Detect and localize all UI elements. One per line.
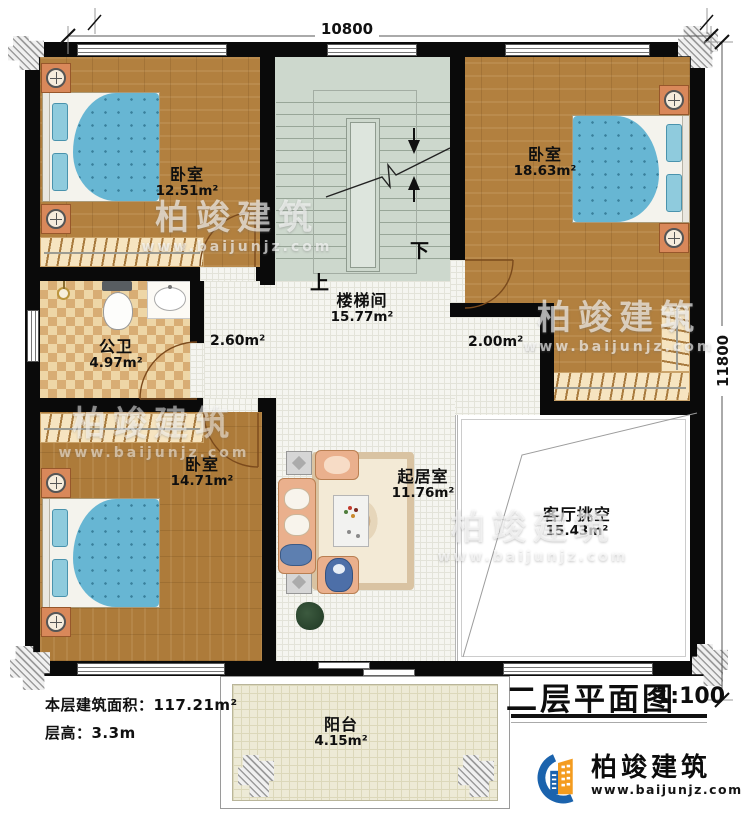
door-threshold (190, 343, 204, 398)
wall-interior (262, 398, 276, 676)
plan-title: 二层平面图 (506, 674, 676, 719)
plan-scale: 1:100 (655, 684, 725, 709)
bed-bedroom-tl (42, 92, 160, 202)
sofa-cushion (284, 514, 310, 536)
wall-interior (450, 42, 465, 260)
dimension-width: 10800 (315, 20, 379, 38)
title-underline-thin (511, 722, 707, 723)
nightstand (41, 607, 71, 637)
window (27, 310, 39, 362)
pillow (52, 103, 68, 141)
column-hatch (692, 644, 728, 686)
sliding-door-leaf (318, 662, 370, 669)
door-threshold (203, 398, 258, 412)
bed-bedroom-bl (42, 498, 160, 608)
pillow (666, 124, 682, 162)
title-underline (511, 714, 707, 718)
hall-area-left: 2.60m² (210, 333, 265, 349)
pillow (52, 153, 68, 191)
toilet (100, 281, 134, 331)
nightstand (41, 468, 71, 498)
window (77, 44, 227, 56)
stair-railing (346, 118, 380, 272)
pillow (52, 509, 68, 547)
bed-quilt (73, 499, 159, 607)
coffee-table (333, 495, 369, 547)
floor-height-note: 层高：3.3m (45, 722, 136, 743)
floorplan-canvas: 卧室 12.51m² 卧室 18.63m² 楼梯间 15.77m² 公卫 4.9… (0, 0, 750, 823)
living-void-railing (461, 419, 686, 657)
wardrobe (661, 305, 690, 372)
nightstand (41, 63, 71, 93)
stair-down-label: 下 (410, 236, 429, 263)
window (505, 44, 650, 56)
wardrobe (40, 237, 204, 267)
column-hatch (8, 36, 44, 70)
pillow (666, 174, 682, 212)
bed-headboard (682, 116, 689, 222)
bed-headboard (43, 93, 50, 201)
wall-interior (260, 42, 275, 285)
logo-website: www.baijunjz.com (591, 782, 743, 797)
hall-area-right: 2.00m² (468, 334, 523, 350)
floor-area-note: 本层建筑面积：117.21m² (45, 694, 238, 715)
wall-interior (450, 303, 554, 317)
nightstand (659, 223, 689, 253)
person-figure (325, 558, 353, 592)
side-table (286, 451, 312, 475)
wall-interior (540, 303, 554, 415)
bed-headboard (43, 499, 50, 607)
stair-up-label: 上 (310, 268, 329, 295)
sink (147, 281, 193, 319)
armchair (315, 450, 359, 480)
logo-text: 柏竣建筑 www.baijunjz.com (591, 755, 743, 797)
window (327, 44, 417, 56)
bed-quilt (573, 116, 659, 222)
wardrobe (40, 413, 204, 443)
bed-quilt (73, 93, 159, 201)
window (77, 663, 225, 675)
bed-bedroom-tr (572, 115, 690, 223)
company-logo: 柏竣建筑 www.baijunjz.com (532, 747, 743, 805)
wall-interior (540, 401, 705, 415)
potted-plant (296, 602, 324, 630)
wall-interior (25, 267, 200, 281)
logo-building-icon (532, 747, 584, 805)
wall-interior (256, 267, 275, 281)
sofa-pillow (280, 544, 312, 566)
door-threshold (200, 267, 256, 281)
wardrobe (548, 372, 690, 401)
dimension-height: 11800 (714, 326, 732, 396)
wall-exterior-right (690, 42, 705, 676)
sliding-door-leaf (363, 669, 415, 676)
logo-company-name: 柏竣建筑 (591, 755, 743, 782)
pillow (52, 559, 68, 597)
column-hatch (10, 646, 50, 690)
bath-light-fixture (57, 287, 70, 300)
wall-interior (190, 281, 204, 343)
hall-nook-floor (450, 317, 540, 415)
nightstand (659, 85, 689, 115)
table-flowers (348, 506, 352, 510)
sofa-cushion (284, 488, 310, 510)
nightstand (41, 204, 71, 234)
wall-interior (25, 398, 203, 412)
